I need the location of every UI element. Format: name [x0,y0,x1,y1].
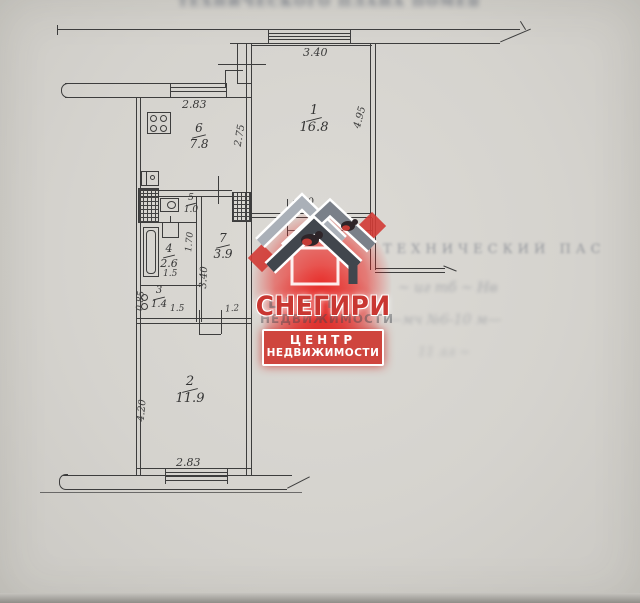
stove-burner-icon [150,125,157,132]
window-kitchen [170,87,226,88]
wall-jog [218,64,266,65]
wall-bottom-balcony-cap [59,474,68,490]
window-kitchen [170,91,226,92]
room-number: 3 [156,285,162,296]
room-number: 4 [166,242,173,255]
bird-breast-icon [342,225,350,231]
window-room1 [268,33,350,34]
wall-bottom-balcony-bottom [68,489,287,490]
wall-party-stub-end [443,265,456,271]
washbasin-stem [170,216,171,223]
watermark-tagline-2: НЕДВИЖИМОСТИ [264,347,382,359]
wall-break-mark [520,21,526,30]
watermark-banner: ЦЕНТР НЕДВИЖИМОСТИ [262,329,384,366]
window-room2 [165,476,227,477]
dim-room2-window: 2.83 [176,456,201,469]
window-room1-jamb [350,29,351,43]
room-number: 6 [195,121,203,135]
toilet-bowl-icon [167,201,176,209]
dim-balcony-top: 3.40 [303,46,328,59]
window-room1-jamb [268,29,269,43]
window-kitchen-jamb [226,83,227,97]
bird-head-icon [352,219,358,225]
wall-hall-bottom [136,323,251,324]
room-area: 1.0 [184,205,198,215]
wall-hall-bottom [136,318,251,319]
wall-kitchen-balcony-cap [61,83,70,98]
stove-burner-icon [150,115,157,122]
window-room2-jamb [227,468,228,484]
bleedthrough-top-band: ТЕХНИЧЕСКОГО ПЛАНА ПОМЕЩЕНИЯ [178,0,478,10]
bleedthrough-scribble: 11 лл ~ [418,345,470,360]
bleedthrough-scribble: ~ иг тб ~ Нв [398,280,498,296]
stove-burner-icon [160,115,167,122]
room-label-4: 4 2.6 [155,243,183,269]
house-body-icon [292,248,338,284]
wall-top-balcony-bottom [230,43,500,44]
ground-line [40,492,302,493]
wall-kitchen-top [65,97,252,98]
wall-jog [225,70,243,71]
photo-edge [0,593,640,603]
wall-top-balcony-top [57,29,520,30]
floor-plan-photo: ТЕХНИЧЕСКОГО ПЛАНА ПОМЕЩЕНИЯ ТЕХНИЧЕСКИЙ… [0,0,640,603]
door-tick [199,310,200,334]
window-kitchen-jamb [170,83,171,97]
room-area: 7.8 [189,137,208,151]
window-room2-jamb [165,468,166,484]
room-number: 5 [188,193,194,203]
wall-jog [237,83,252,84]
room-label-5: 5 1.0 [179,194,203,216]
bird-head-icon [315,231,323,239]
kitchen-sink-divider [146,171,147,186]
room-number: 7 [219,231,227,245]
room-label-7: 7 3.9 [206,232,240,260]
room-label-2: 2 11.9 [168,375,212,405]
watermark-brand: СНЕГИРИ [256,291,388,322]
dim-bath-bottom: 1.5 [163,269,177,279]
room-area: 11.9 [176,391,205,406]
bird-breast-icon [302,239,312,246]
stove-burner-icon [160,125,167,132]
wall-kitchen-balcony-top [65,83,226,84]
door-tick [221,310,222,334]
dim-room1-side: 4.95 [352,105,368,129]
wall-bottom-balcony-taper [287,476,310,488]
room-area: 3.9 [213,247,232,261]
room-number: 2 [186,374,194,389]
watermark-tagline-1: ЦЕНТР [264,333,382,347]
watermark-houses-icon [240,186,400,304]
wall-bottom-balcony-top [63,475,292,476]
dim-room3-side: 0.85 [135,291,147,312]
room-area: 16.8 [300,120,329,135]
window-room2 [165,480,227,481]
dim-room2-side: 4.20 [136,399,149,422]
wall-tick [57,25,58,35]
room-label-6: 6 7.8 [182,122,216,150]
dim-entry-width: 1.2 [225,303,240,314]
bleedthrough-right-title: ТЕХНИЧЕСКИЙ ПАС [383,242,640,257]
washbasin-icon [162,222,179,238]
room-label-3: 3 1.4 [146,286,172,310]
dim-kitchen-window: 2.83 [182,98,207,111]
kitchen-sink-drain-icon [150,175,155,180]
window-room2 [165,472,227,473]
dim-bath-side: 1.70 [184,232,196,253]
vent-shaft [138,188,159,223]
room-label-1: 1 16.8 [295,104,333,134]
room-number: 1 [310,103,318,118]
window-room1 [268,39,350,40]
wall-top-balcony-taper [500,29,531,43]
dim-room3-bottom: 1.5 [170,304,184,314]
bleedthrough-scribble: —мч №6-10 м— [388,312,502,328]
dim-hall-side: 3.40 [198,266,210,289]
door-tick [218,176,219,204]
window-room1 [268,36,350,37]
door-leaf [199,334,221,335]
